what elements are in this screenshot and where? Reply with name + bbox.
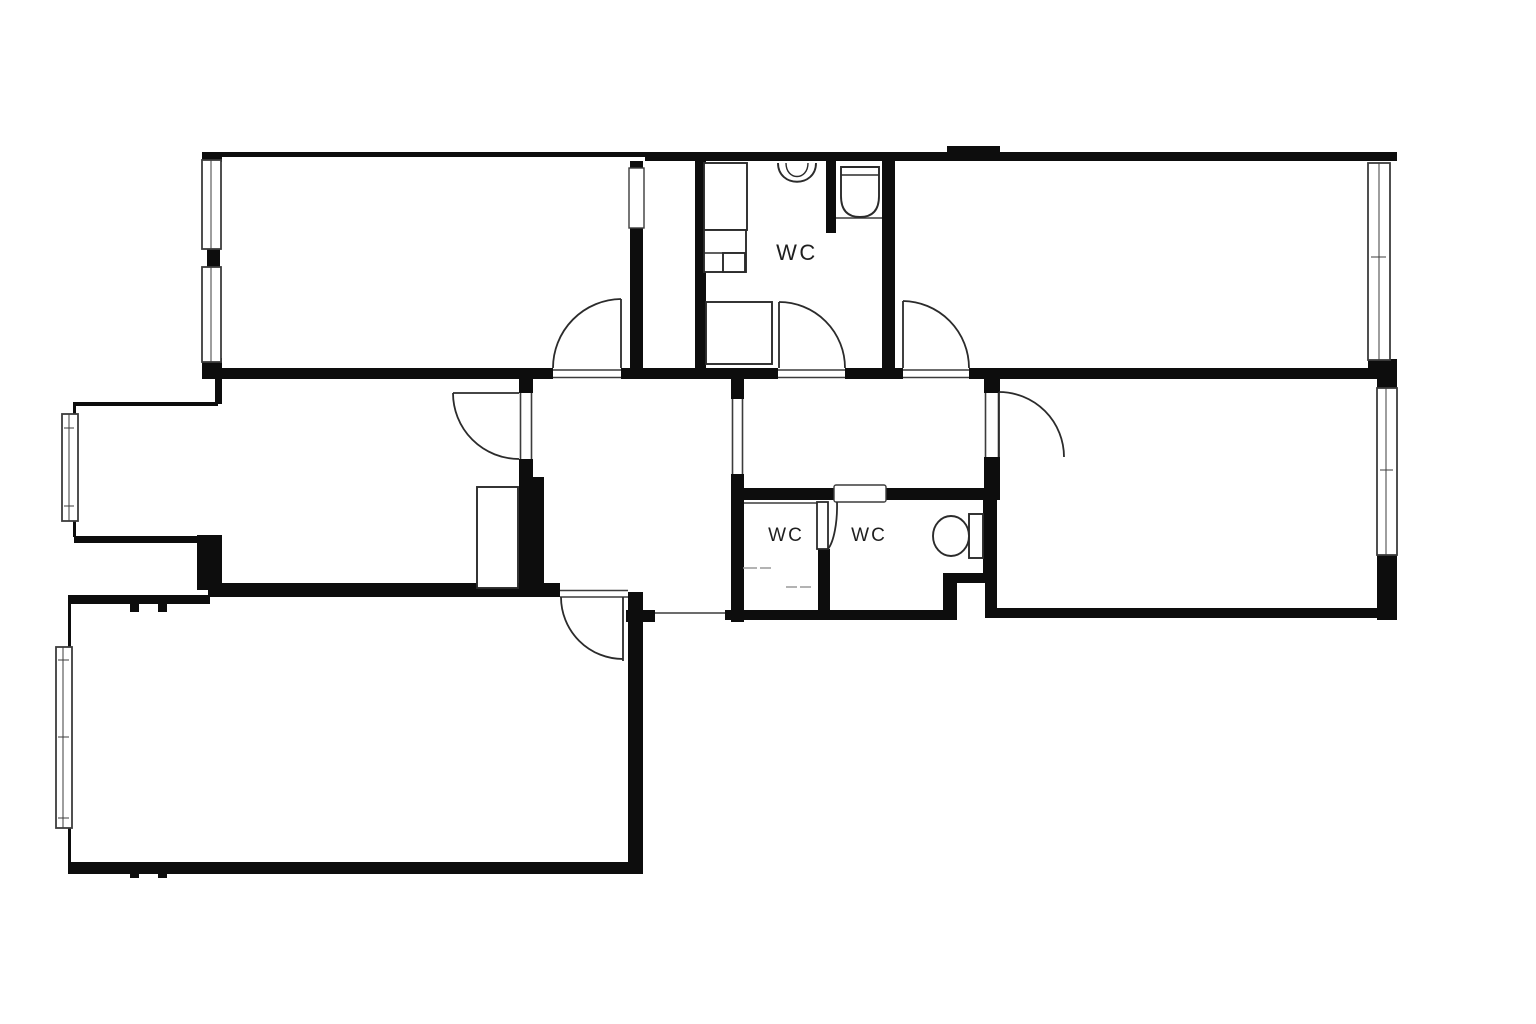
wall-segment — [130, 595, 139, 612]
wall-segment — [985, 608, 1397, 618]
wall-segment — [74, 536, 200, 543]
wall-segment — [818, 549, 830, 610]
window-icon — [1368, 163, 1390, 360]
wc-door-recess — [834, 485, 886, 502]
door-openings — [521, 218, 999, 613]
floor-plan-drawing: WC WC WC — [0, 0, 1536, 1024]
door-swing-icon — [779, 302, 845, 368]
wall-segment — [207, 248, 220, 268]
counter-icon — [704, 163, 747, 230]
door-swing-icon — [999, 392, 1064, 457]
door-swing-icon — [453, 393, 519, 459]
toilet-icon — [841, 167, 879, 217]
wall-segment — [202, 368, 553, 379]
door-swing-icon — [817, 502, 837, 549]
wall-segment — [943, 573, 957, 612]
door-swing-icon — [903, 301, 969, 368]
wall-segment — [947, 146, 1000, 161]
wall-segment — [885, 488, 1000, 500]
wall-segment — [519, 459, 533, 479]
wall-segment — [202, 152, 645, 157]
window-icon — [202, 267, 221, 362]
wall-segment — [985, 583, 997, 610]
washer-counter-icon — [704, 230, 746, 272]
wall-segment — [731, 372, 744, 399]
label-wc-left: WC — [768, 525, 804, 546]
wall-segment — [628, 592, 643, 874]
sink-icon — [778, 163, 816, 182]
door-threshold — [560, 591, 628, 598]
wall-segment — [215, 379, 222, 404]
door-threshold — [778, 370, 845, 378]
door-threshold — [521, 393, 532, 459]
wardrobe-icon — [477, 487, 518, 588]
wall-segment — [882, 161, 895, 369]
door-threshold — [553, 370, 621, 378]
wall-segment — [130, 866, 139, 878]
wall-segment — [158, 595, 167, 612]
window-icon — [62, 414, 78, 521]
wall-segment — [845, 368, 903, 379]
wall-segment — [983, 498, 997, 575]
label-bathroom-main: WC — [776, 240, 818, 265]
wall-segment — [725, 610, 957, 620]
wall-segment — [984, 368, 1000, 393]
door-threshold — [986, 393, 999, 457]
door-swing-icon — [561, 597, 623, 661]
window-icon — [1377, 388, 1397, 555]
door-threshold — [733, 399, 743, 474]
wall-segment — [969, 368, 1397, 379]
wall-segment — [731, 488, 835, 500]
wall-segment — [158, 866, 167, 878]
wall-segment — [621, 368, 778, 379]
floor-plan-page: WC WC WC — [0, 0, 1536, 1024]
door-threshold — [903, 370, 969, 378]
wall-segment — [519, 379, 533, 393]
wall-segment — [645, 152, 1397, 161]
duct-niche — [629, 168, 644, 228]
shower-tray-icon — [706, 302, 772, 364]
wall-segment — [68, 862, 643, 874]
toilet-icon — [933, 514, 983, 558]
window-icon — [56, 647, 72, 828]
wall-segment — [519, 477, 544, 587]
appliance-dashes — [743, 568, 811, 587]
wall-segment — [826, 161, 836, 233]
wall-segment — [69, 595, 210, 604]
window-icon — [202, 160, 221, 249]
label-wc-right: WC — [851, 525, 887, 546]
wall-segment — [73, 402, 218, 406]
door-swing-icon — [553, 299, 621, 368]
wall-segment — [197, 535, 222, 590]
